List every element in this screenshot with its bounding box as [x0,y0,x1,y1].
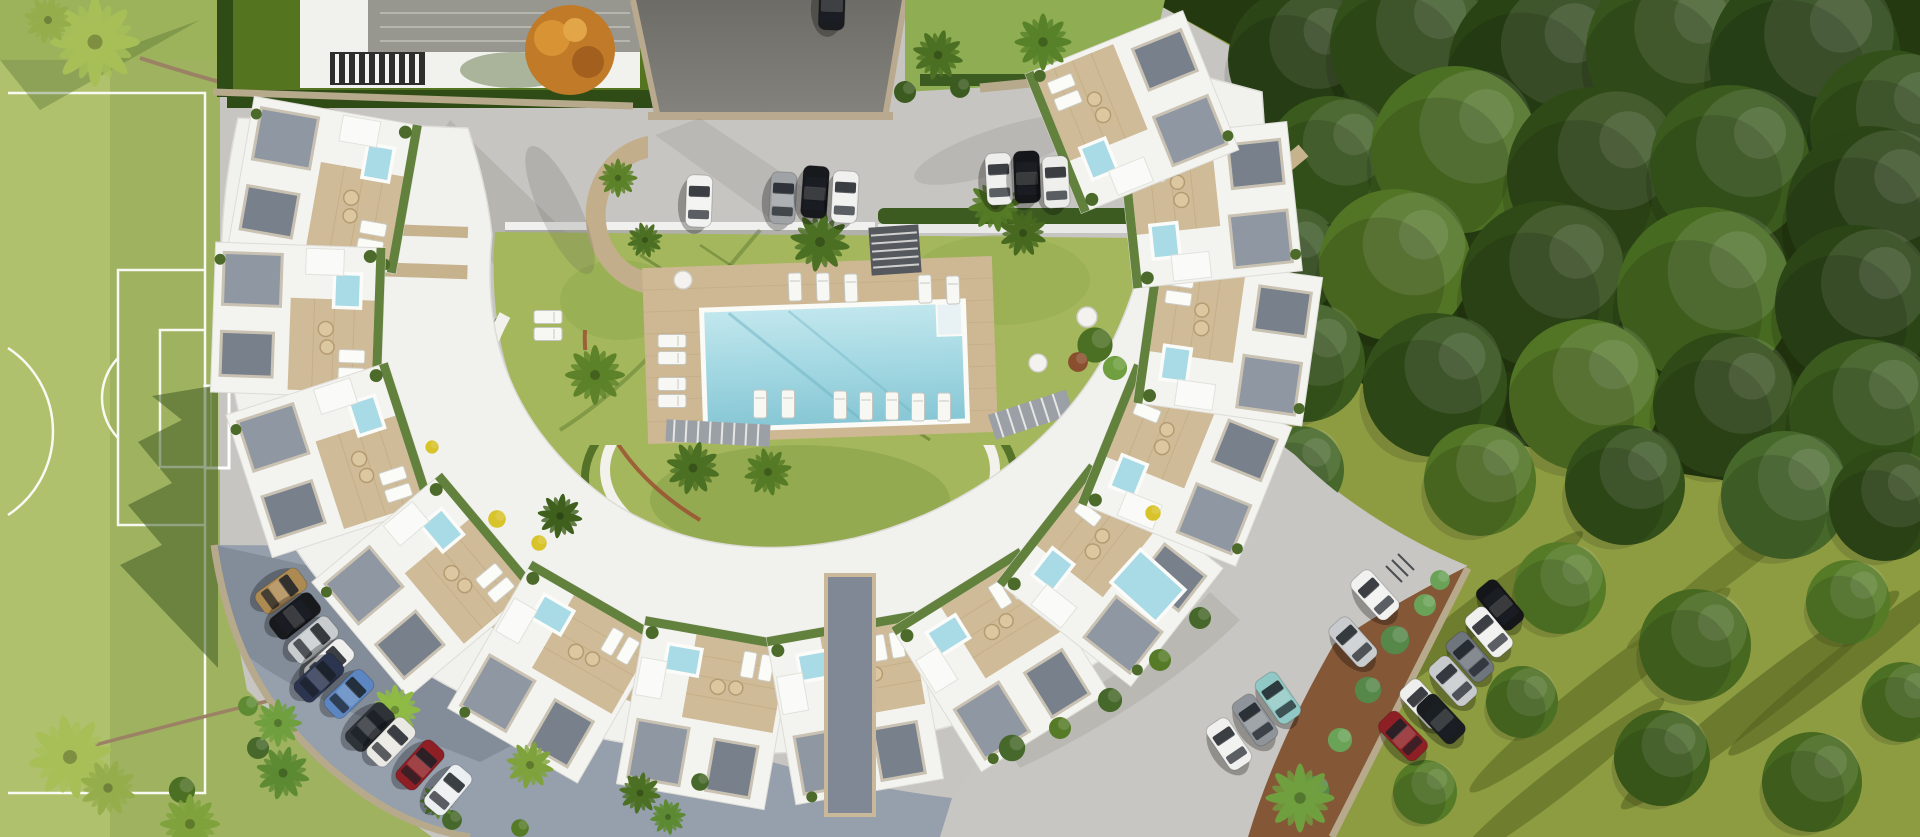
sun-lounger [754,390,767,418]
shrub [1149,649,1171,671]
sun-lounger [844,274,858,302]
palm-tree [599,159,638,198]
aerial-render [0,0,1920,837]
shrub [425,440,438,453]
shrub [531,535,546,550]
entrance-driveway [633,0,905,120]
sun-lounger [918,275,932,303]
round-table [674,271,692,289]
palm-tree [1015,13,1072,70]
shrub [247,737,269,759]
shrub [488,510,506,528]
shrub [1189,607,1211,629]
stairs-top [868,224,921,275]
shrub [999,735,1025,761]
shrub [1103,356,1127,380]
sun-lounger [658,352,686,365]
round-table [1077,307,1097,327]
forest-layer [1224,0,1920,565]
sun-lounger [534,328,562,341]
sun-lounger [782,390,795,418]
sun-lounger [658,335,686,348]
shrub [1145,505,1160,520]
palm-tree [565,345,625,405]
sun-lounger [886,392,899,420]
sun-lounger [816,273,830,301]
shrub [511,819,529,837]
sun-lounger [788,273,802,301]
shrub [1328,728,1352,752]
sun-lounger [834,391,847,419]
shrub [950,78,970,98]
sun-lounger [658,378,686,391]
sun-lounger [860,392,873,420]
sun-lounger [658,395,686,408]
shrub [1049,717,1071,739]
shrub [238,696,258,716]
shrub [1414,594,1436,616]
shrub [1381,626,1410,655]
round-table [1029,354,1047,372]
scene-canvas [0,0,1920,837]
hedge [217,0,233,97]
shrub [691,773,709,791]
shrub [1430,570,1450,590]
shrub [894,81,916,103]
autumn-tree [525,5,615,95]
sun-lounger [534,311,562,324]
palm-tree [254,699,302,747]
shrub [1068,352,1088,372]
palm-tree [1266,764,1335,833]
pool-steps [936,303,962,336]
shrub [1355,677,1381,703]
shrub [1098,688,1122,712]
sun-lounger [938,393,951,421]
sun-lounger [912,393,925,421]
sun-lounger [946,276,960,304]
